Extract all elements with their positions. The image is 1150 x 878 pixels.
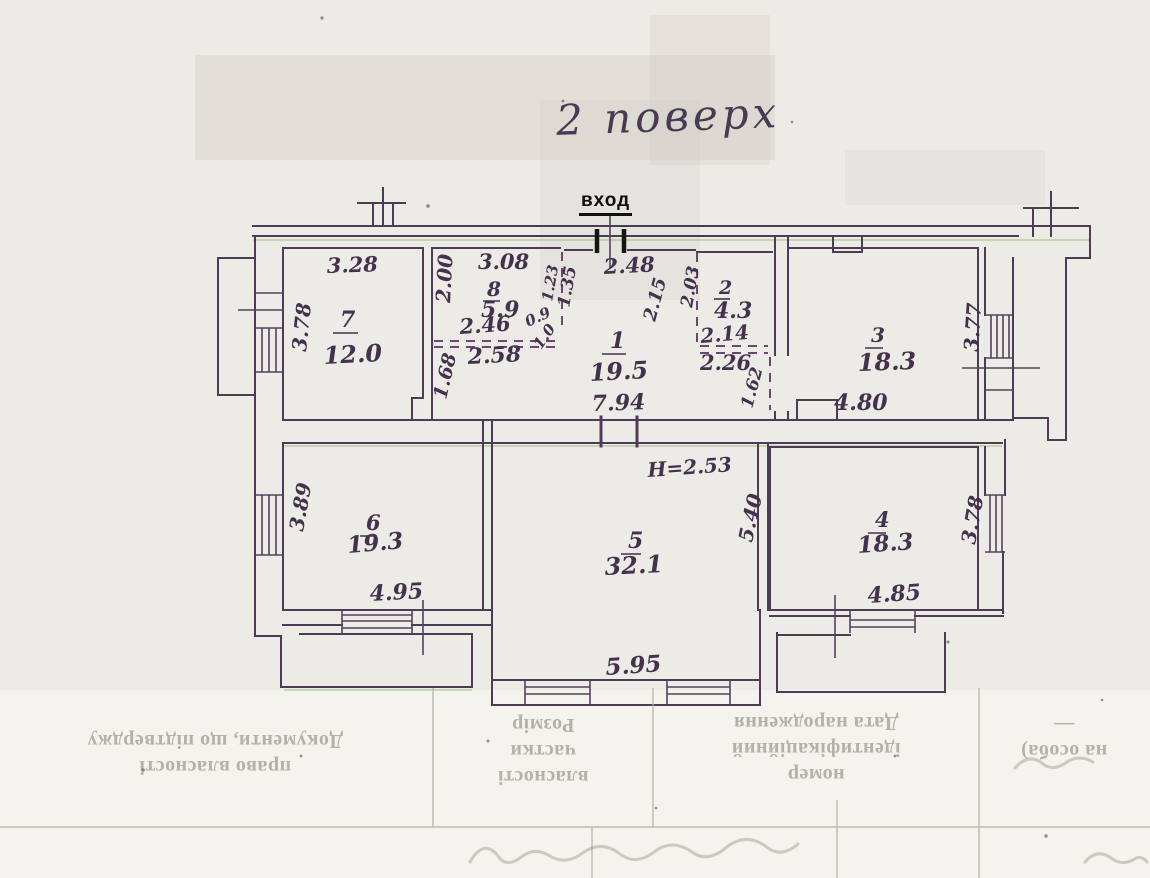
room-4-dim-bottom: 4.85: [867, 579, 922, 609]
room-2-label: 2.03 2 4.3 2.14 2.26 1.62: [677, 264, 768, 410]
table-col-person-line2: на особа): [984, 738, 1144, 764]
room-8-dim-left: 2.00: [431, 253, 458, 304]
room-2-dim-mid: 2.14: [698, 320, 750, 348]
room-5-dim-bottom: 5.95: [605, 650, 663, 681]
room-2-dim-left: 2.03: [677, 264, 704, 309]
room-3-number: 3: [871, 323, 885, 347]
room-6-dim-bottom: 4.95: [369, 578, 424, 607]
room-4-area: 18.3: [857, 528, 915, 559]
scanned-floorplan-page: { "document": { "floor_title": "2 поверх…: [0, 0, 1150, 878]
room-5-label: Н=2.53 5 32.1 5.40 5.95: [604, 452, 767, 681]
room-8-dim-mid1: 2.46: [458, 310, 512, 339]
room-1-number: 1: [610, 328, 625, 354]
chimney-symbols: [358, 188, 1078, 236]
room-2-dim-bottom: 2.26: [699, 350, 752, 375]
room-1-label: 1.23 1.35 2.48 2.15 1 19.5 7.94: [538, 251, 671, 417]
room-5-dim-right: 5.40: [733, 491, 767, 544]
room-3-dim-right: 3.77: [959, 302, 986, 352]
table-col-documents-line1: Документи, що підтверджу: [5, 728, 425, 754]
room-1-dim-v3: 2.15: [639, 276, 671, 325]
room-3-label: 3 18.3 4.80 3.77: [834, 302, 986, 416]
room-3-dim-bottom: 4.80: [834, 390, 888, 416]
table-col-birthdate-line3: номер: [658, 762, 974, 788]
room-6-area: 19.3: [346, 527, 404, 559]
table-col-documents-line2: право власності: [5, 754, 425, 780]
room-4-dim-right: 3.78: [956, 494, 988, 546]
room-6-label: 6 19.3 3.89 4.95: [284, 481, 424, 607]
room-8-dim-top: 3.08: [478, 249, 530, 274]
left-facade-windows: [238, 293, 283, 555]
table-col-birthdate-line2: ідентифікаційний: [658, 736, 974, 762]
table-col-birthdate-line1: Дата народження: [658, 710, 974, 736]
room-5-height-note: Н=2.53: [646, 452, 733, 482]
room-8-dim-mid2: 2.58: [466, 341, 522, 370]
table-col-share-line3: власності: [438, 764, 648, 790]
room-7-label: 3.28 7 12.0 3.78: [287, 251, 383, 370]
table-col-birthdate-id: номер ідентифікаційний Дата народження: [658, 710, 974, 788]
room-8-dim-low: 1.68: [429, 351, 461, 401]
room-7-dim-top: 3.28: [326, 251, 378, 278]
room-1-dim-top: 2.48: [602, 251, 656, 279]
table-col-person-line1: —: [984, 712, 1144, 738]
room-7-dim-left: 3.78: [287, 301, 316, 352]
room-1-area: 19.5: [589, 355, 649, 387]
room-6-dim-left: 3.89: [284, 481, 316, 533]
room-5-area: 32.1: [604, 549, 664, 581]
room-7-number: 7: [340, 307, 356, 333]
table-col-share-size: власності частки Розмір: [438, 712, 648, 790]
room-4-number: 4: [875, 507, 890, 532]
room-3-area: 18.3: [857, 346, 916, 377]
room-7-area: 12.0: [323, 338, 383, 370]
room-2-number: 2: [718, 277, 732, 299]
room-8-label: 3.08 2.00 8 5.9 2.46 2.58 1.68 0.9 1.0: [429, 249, 559, 401]
table-col-documents: право власності Документи, що підтверджу: [5, 728, 425, 780]
room-1-dim-bottom: 7.94: [591, 389, 645, 417]
table-col-share-line1: Розмір: [438, 712, 648, 738]
table-col-share-line2: частки: [438, 738, 648, 764]
room-4-label: 4 18.3 3.78 4.85: [857, 494, 989, 609]
table-col-person: на особа) —: [984, 712, 1144, 764]
